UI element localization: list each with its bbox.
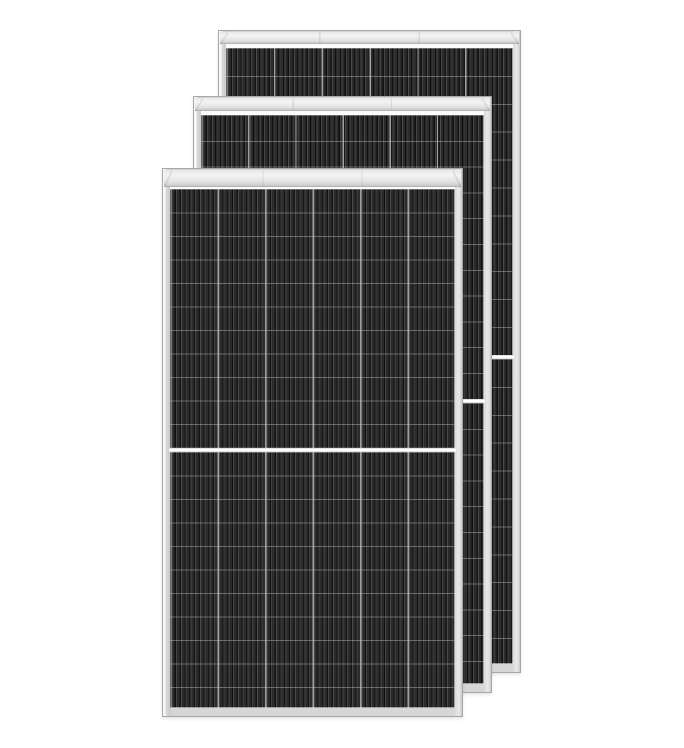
panel-cell-grid [170,189,455,708]
product-image [0,0,684,748]
cells-upper-half [170,189,455,448]
cells-lower-half [170,452,455,709]
panel-top-frame [164,170,461,187]
panel-top-frame [195,98,490,111]
solar-panel-front [162,168,463,717]
panel-top-frame [220,32,519,44]
